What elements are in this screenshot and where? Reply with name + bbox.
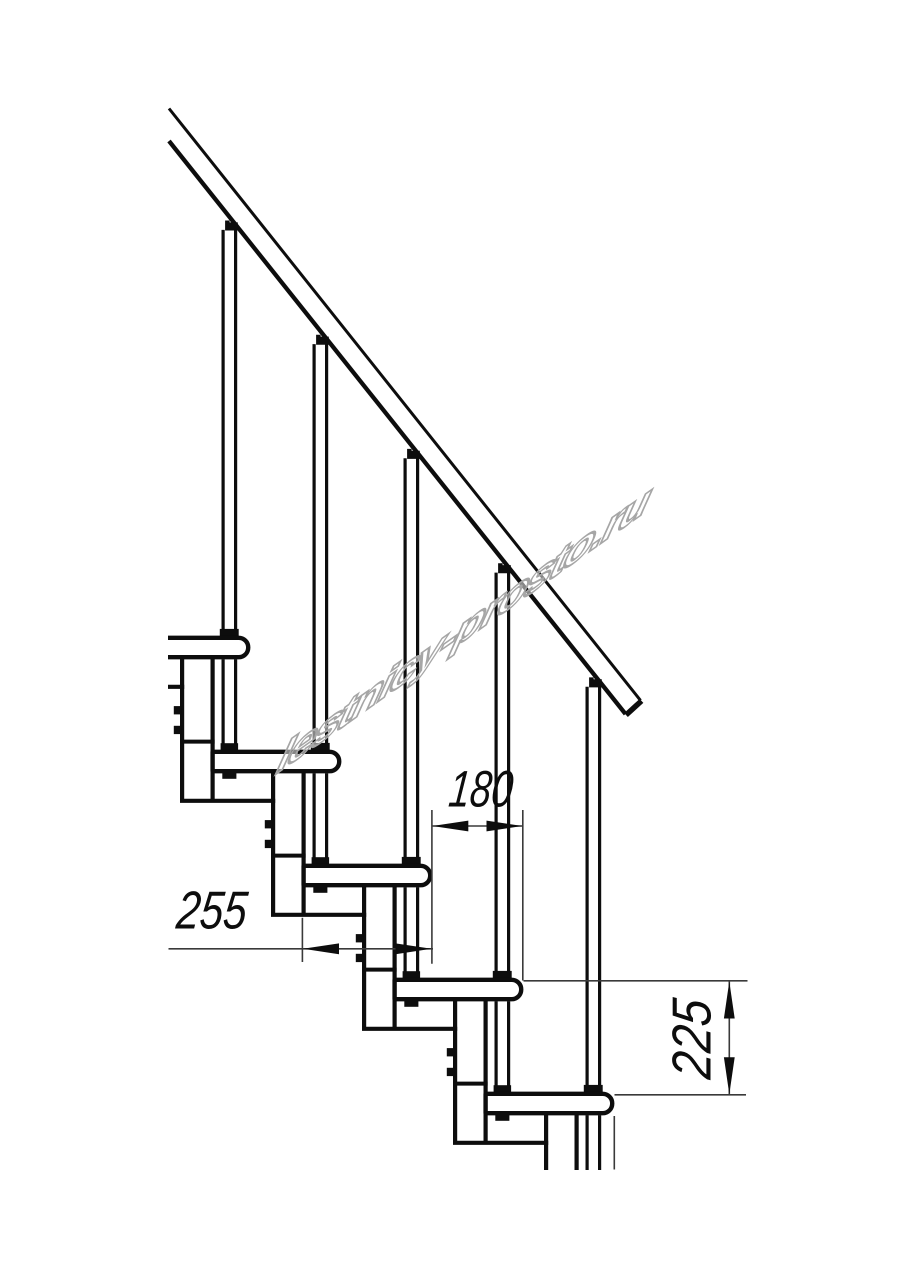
svg-text:180: 180	[446, 760, 516, 818]
svg-text:225: 225	[661, 995, 723, 1082]
svg-text:255: 255	[173, 881, 250, 940]
